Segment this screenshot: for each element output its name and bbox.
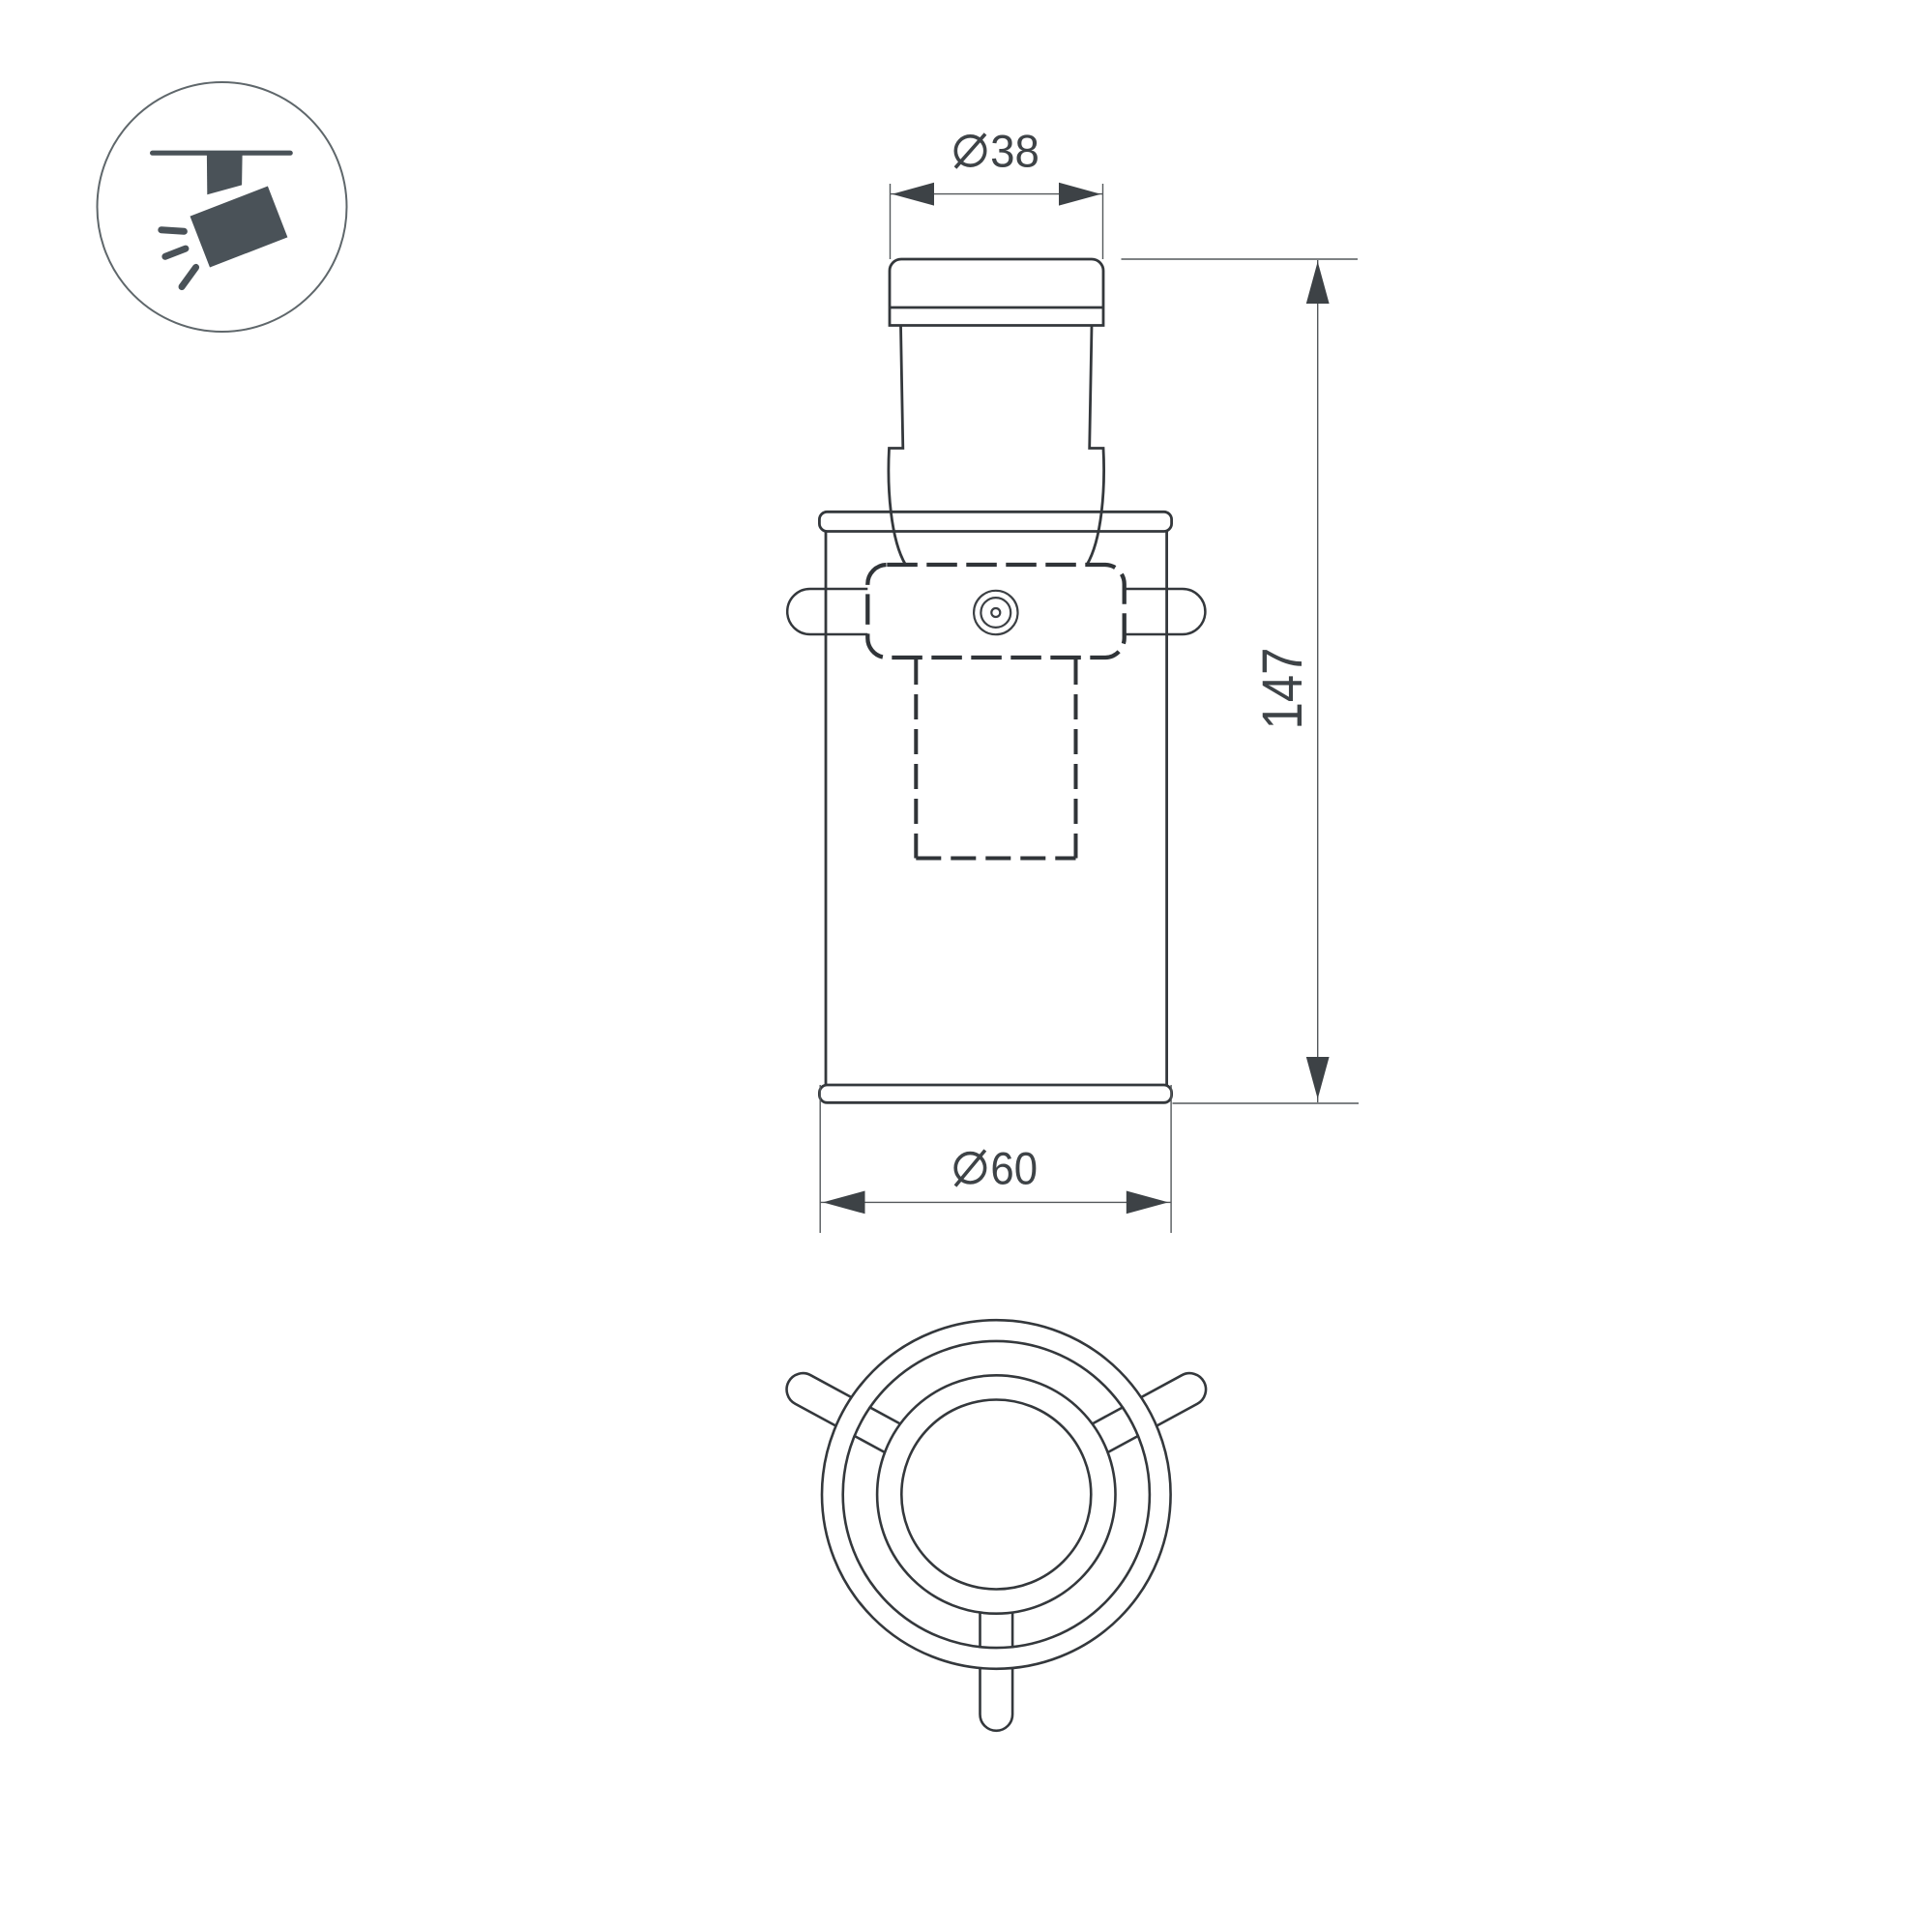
svg-text:38: 38	[990, 126, 1039, 177]
svg-text:60: 60	[990, 1143, 1038, 1194]
svg-text:147: 147	[1250, 648, 1314, 730]
